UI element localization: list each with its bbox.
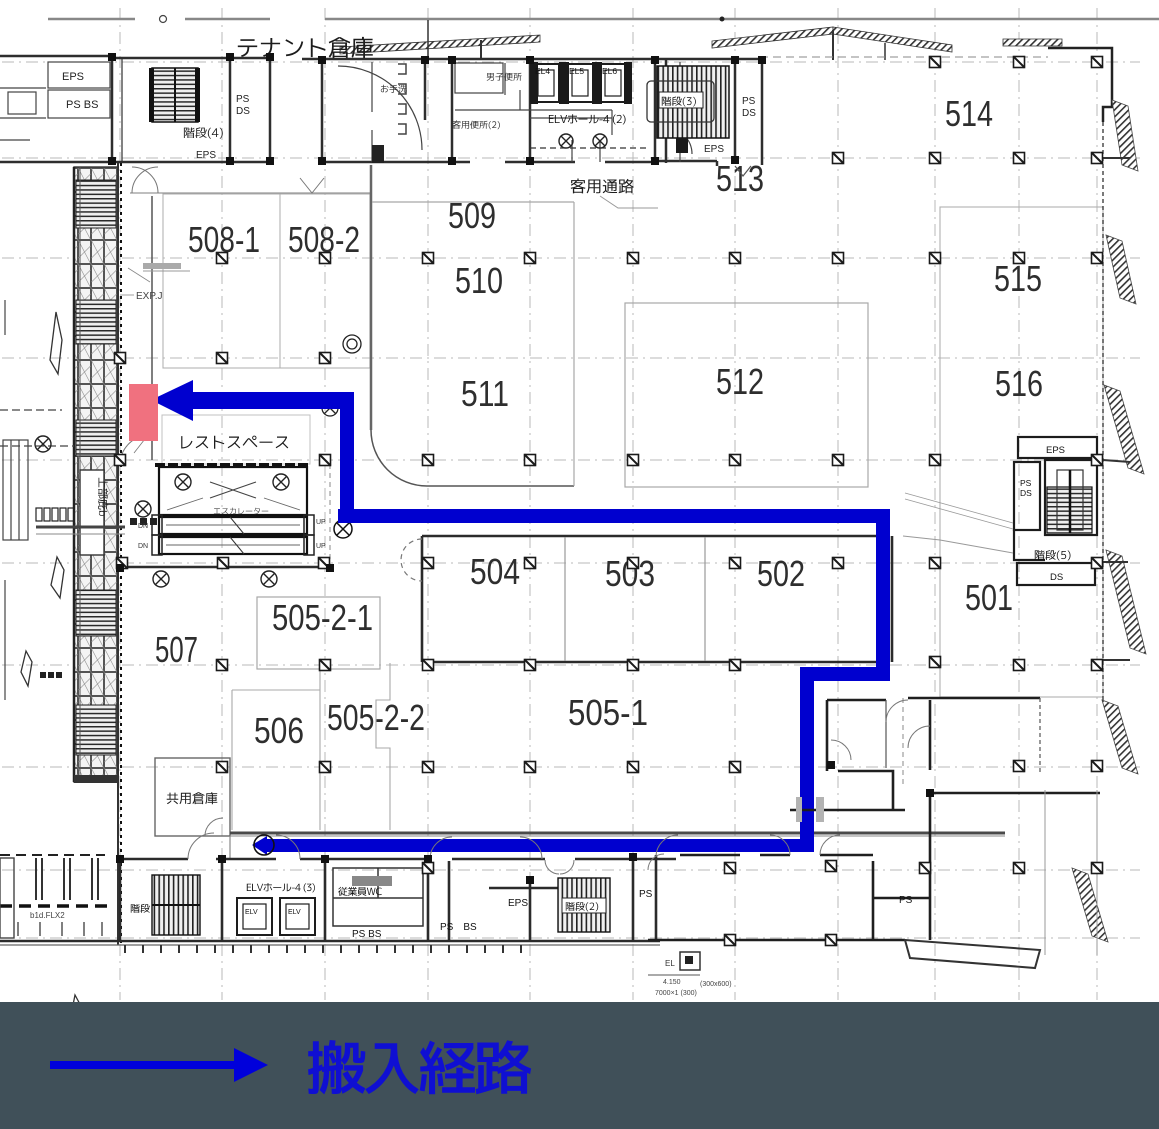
svg-text:EL: EL: [665, 959, 675, 968]
svg-text:DN: DN: [138, 523, 148, 530]
svg-text:PS: PS: [899, 895, 913, 906]
svg-text:PS: PS: [1020, 478, 1032, 488]
svg-text:UP: UP: [316, 543, 326, 550]
svg-text:EPS: EPS: [62, 71, 84, 83]
svg-text:505-2-1: 505-2-1: [272, 597, 373, 638]
svg-text:PS BS: PS BS: [66, 99, 98, 111]
svg-text:DS: DS: [1050, 572, 1063, 583]
svg-text:PS: PS: [639, 889, 653, 900]
svg-text:DS: DS: [1020, 488, 1032, 498]
svg-text:EL6: EL6: [602, 66, 617, 76]
svg-text:PS: PS: [236, 94, 250, 105]
svg-text:DS: DS: [236, 106, 250, 117]
svg-text:ELV: ELV: [288, 909, 301, 916]
svg-text:PS BS: PS BS: [352, 929, 382, 940]
svg-text:510: 510: [455, 260, 503, 301]
svg-text:507: 507: [155, 629, 198, 670]
svg-text:506: 506: [254, 710, 304, 751]
svg-text:DN: DN: [138, 543, 148, 550]
svg-text:509: 509: [448, 195, 496, 236]
svg-text:511: 511: [461, 373, 509, 414]
svg-text:(300x600): (300x600): [700, 981, 732, 988]
svg-text:UP: UP: [316, 519, 326, 526]
svg-text:PS: PS: [742, 96, 756, 107]
svg-text:7000×1 (300): 7000×1 (300): [655, 990, 697, 997]
svg-text:502: 502: [757, 553, 805, 594]
svg-text:EL5: EL5: [569, 66, 584, 76]
svg-text:PS BS: PS BS: [440, 922, 477, 933]
svg-text:516: 516: [995, 363, 1043, 404]
svg-text:EPS: EPS: [196, 150, 216, 161]
svg-text:EL4: EL4: [535, 66, 550, 76]
svg-text:512: 512: [716, 361, 764, 402]
svg-text:505-1: 505-1: [568, 692, 648, 733]
svg-text:EPS: EPS: [508, 898, 528, 909]
svg-text:501: 501: [965, 577, 1013, 618]
svg-text:514: 514: [945, 93, 993, 134]
svg-text:ELV: ELV: [245, 909, 258, 916]
svg-text:504: 504: [470, 551, 520, 592]
svg-text:EXP.J: EXP.J: [136, 291, 163, 302]
svg-text:4.150: 4.150: [663, 979, 681, 986]
svg-text:513: 513: [716, 158, 764, 199]
svg-text:DS: DS: [742, 108, 756, 119]
svg-text:EPS: EPS: [1046, 445, 1065, 456]
svg-text:EPS: EPS: [704, 144, 724, 155]
svg-text:b1d.FLX2: b1d.FLX2: [30, 911, 65, 920]
